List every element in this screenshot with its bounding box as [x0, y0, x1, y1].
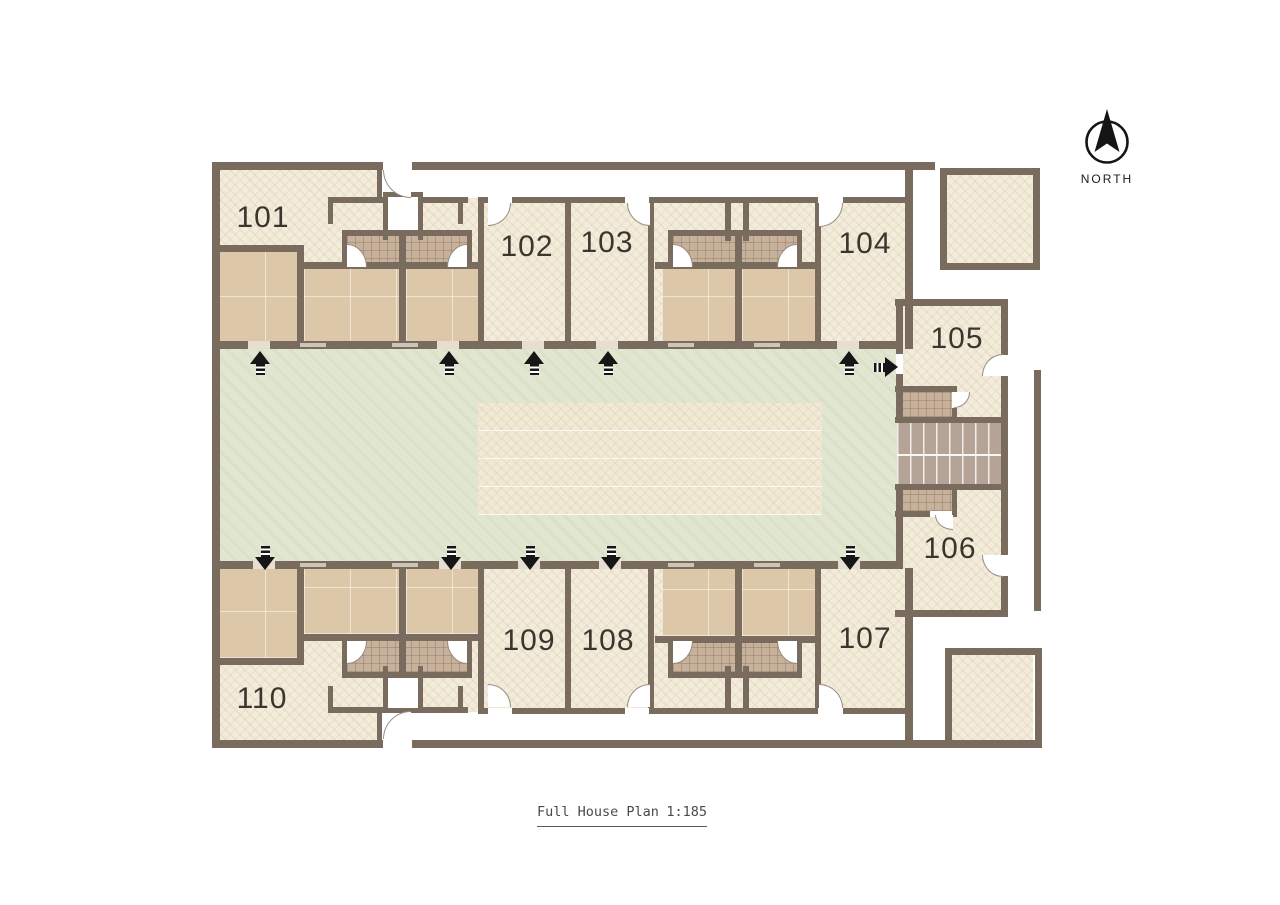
room-label-110: 110 [237, 682, 288, 716]
bedroom-floor [304, 269, 401, 343]
entry-arrow-up-icon [249, 351, 271, 375]
wall [940, 168, 1040, 175]
vestibule-floor [380, 712, 908, 741]
wall [743, 197, 749, 241]
wall [895, 484, 1001, 490]
entry-arrow-down-icon [440, 546, 462, 570]
wall [895, 610, 1008, 617]
window-sill [668, 343, 694, 347]
window-sill [392, 343, 418, 347]
north-label: NORTH [1076, 172, 1138, 186]
wall [735, 568, 742, 672]
wall [212, 162, 935, 170]
room-label-107: 107 [838, 622, 891, 656]
wall [896, 488, 903, 568]
wall [1035, 648, 1042, 748]
wall [383, 666, 388, 713]
room-label-105: 105 [930, 322, 983, 356]
bathroom-floor [902, 488, 952, 511]
bedroom-floor [406, 568, 478, 634]
wall [565, 197, 571, 349]
room-floor [947, 175, 1033, 263]
window-sill [300, 563, 326, 567]
door-opening [625, 708, 649, 714]
door-opening [837, 341, 859, 349]
wall [725, 666, 731, 710]
wall [328, 197, 333, 224]
wall [725, 197, 731, 241]
room-label-101: 101 [236, 201, 289, 235]
window-sill [392, 563, 418, 567]
bedroom-floor [742, 269, 815, 343]
wall [212, 658, 304, 665]
room-label-103: 103 [580, 226, 633, 260]
entry-arrow-down-icon [600, 546, 622, 570]
room-label-104: 104 [838, 227, 891, 261]
window-sill [668, 563, 694, 567]
room-label-109: 109 [502, 624, 555, 658]
door-opening [383, 162, 412, 170]
wall [895, 417, 1001, 423]
wall [478, 568, 484, 714]
wall [342, 230, 472, 236]
window-sill [300, 343, 326, 347]
wall [377, 710, 382, 748]
bedroom-floor [662, 568, 735, 636]
door-opening [437, 341, 459, 349]
room-label-106: 106 [923, 532, 976, 566]
bedroom-floor [742, 568, 815, 636]
entry-arrow-down-icon [519, 546, 541, 570]
door-opening [248, 341, 270, 349]
wall [797, 230, 802, 267]
vestibule-floor [380, 166, 908, 198]
wall [940, 263, 1040, 270]
bedroom-floor [304, 568, 401, 634]
title-block: Full House Plan 1:185 [537, 804, 707, 827]
bedroom-floor [406, 269, 478, 343]
wall [458, 686, 463, 713]
wall [1033, 168, 1040, 270]
wall [483, 708, 913, 714]
wall [895, 386, 957, 392]
wall [896, 299, 903, 354]
wall [297, 568, 304, 665]
door-opening [596, 341, 618, 349]
wall [302, 634, 484, 641]
wall [478, 197, 484, 349]
room-label-102: 102 [500, 230, 553, 264]
room-floor [952, 655, 1033, 740]
wall [1034, 370, 1041, 611]
north-indicator: NORTH [1076, 106, 1138, 186]
wall [905, 568, 913, 748]
door-opening [488, 708, 512, 714]
wall [905, 162, 913, 349]
wall [342, 672, 472, 678]
wall [297, 245, 304, 349]
wall [743, 666, 749, 710]
entry-arrow-down-icon [254, 546, 276, 570]
window-sill [754, 343, 780, 347]
vestibule-floor [388, 197, 418, 234]
wall [668, 230, 802, 236]
window-sill [754, 563, 780, 567]
wall [212, 245, 304, 252]
wall [895, 299, 1008, 306]
entry-arrow-down-icon [839, 546, 861, 570]
bedroom-floor [219, 568, 299, 658]
door-opening [818, 708, 843, 714]
wall [483, 197, 913, 203]
bedroom-floor [219, 250, 299, 343]
entry-arrow-up-icon [838, 351, 860, 375]
entry-arrow-up-icon [438, 351, 460, 375]
wall [797, 641, 802, 672]
north-compass-icon [1076, 106, 1138, 166]
courtyard-path [478, 403, 822, 515]
wall [458, 197, 463, 224]
wall [212, 740, 1042, 748]
wall [735, 236, 742, 349]
wall [896, 374, 903, 420]
bathroom-floor [902, 392, 952, 417]
plan-scale: 1:185 [666, 804, 707, 820]
door-opening [383, 740, 412, 748]
entry-arrow-right-icon [874, 357, 898, 377]
wall [945, 648, 1042, 655]
wall [945, 648, 952, 748]
floor-plan-page: 101 102 103 104 105 106 107 108 109 110 … [0, 0, 1280, 905]
wall [940, 168, 947, 270]
plan-title: Full House Plan [537, 804, 659, 820]
wall [418, 666, 423, 713]
door-opening [522, 341, 544, 349]
wall [565, 568, 571, 714]
wall [399, 236, 406, 349]
wall [377, 162, 382, 198]
wall [467, 230, 472, 267]
wall [467, 641, 472, 672]
entry-arrow-up-icon [597, 351, 619, 375]
bedroom-floor [662, 269, 735, 343]
wall [328, 686, 333, 713]
wall [668, 672, 802, 678]
room-label-108: 108 [581, 624, 634, 658]
wall [399, 568, 406, 672]
entry-arrow-up-icon [523, 351, 545, 375]
staircase [897, 423, 1001, 484]
